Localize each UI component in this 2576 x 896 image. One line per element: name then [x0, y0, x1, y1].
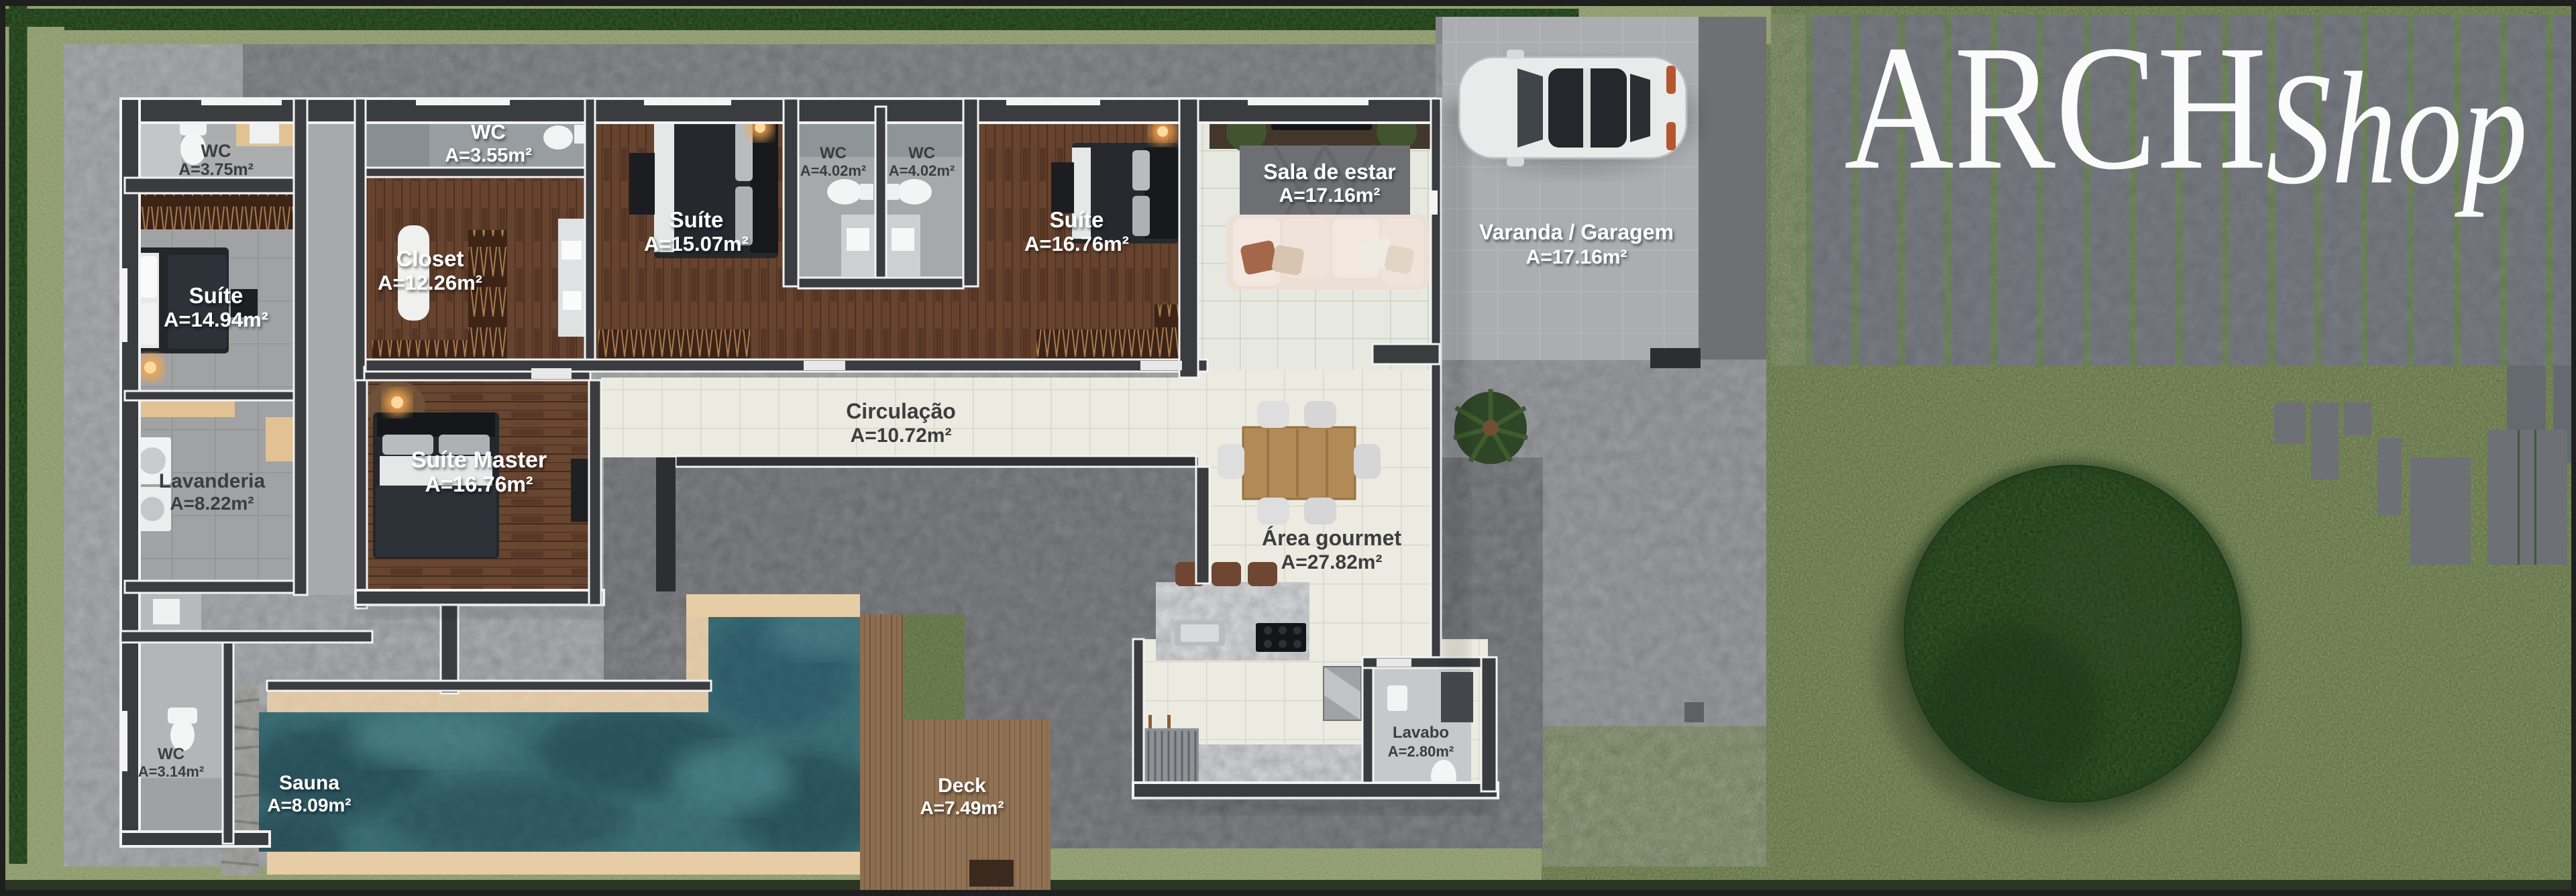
svg-text:WC: WC [471, 120, 506, 144]
svg-text:Circulação: Circulação [846, 399, 956, 423]
svg-text:A=10.72m²: A=10.72m² [851, 425, 952, 447]
svg-text:A=4.02m²: A=4.02m² [800, 162, 866, 179]
svg-text:Lavanderia: Lavanderia [159, 470, 266, 492]
svg-text:A=2.80m²: A=2.80m² [1388, 743, 1454, 760]
svg-text:Varanda / Garagem: Varanda / Garagem [1479, 220, 1674, 244]
svg-text:Sala de estar: Sala de estar [1263, 160, 1395, 184]
svg-text:A=7.49m²: A=7.49m² [920, 797, 1004, 818]
svg-text:A=8.22m²: A=8.22m² [170, 493, 254, 514]
svg-text:WC: WC [820, 144, 847, 162]
svg-text:A=16.76m²: A=16.76m² [1024, 232, 1129, 256]
svg-text:A=15.07m²: A=15.07m² [644, 232, 749, 256]
svg-text:A=4.02m²: A=4.02m² [889, 162, 955, 179]
svg-text:A=17.16m²: A=17.16m² [1526, 246, 1627, 268]
svg-text:Deck: Deck [938, 775, 986, 797]
svg-text:Lavabo: Lavabo [1393, 724, 1449, 742]
svg-text:Shop: Shop [2266, 39, 2528, 217]
svg-text:A=3.75m²: A=3.75m² [178, 160, 254, 179]
svg-text:WC: WC [201, 141, 231, 161]
svg-text:Suíte Master: Suíte Master [411, 447, 547, 473]
svg-text:Suíte: Suíte [669, 207, 724, 232]
svg-text:WC: WC [908, 144, 935, 162]
svg-text:A=14.94m²: A=14.94m² [164, 308, 268, 331]
svg-text:A=27.82m²: A=27.82m² [1281, 551, 1383, 573]
svg-text:A=8.09m²: A=8.09m² [267, 795, 351, 816]
svg-text:Área gourmet: Área gourmet [1262, 526, 1401, 550]
svg-text:A=17.16m²: A=17.16m² [1279, 184, 1381, 207]
svg-text:A=3.55m²: A=3.55m² [445, 145, 532, 166]
svg-text:A=12.26m²: A=12.26m² [378, 271, 482, 294]
svg-text:Suíte: Suíte [189, 283, 244, 308]
svg-text:WC: WC [158, 745, 184, 763]
svg-text:Sauna: Sauna [279, 772, 339, 794]
svg-text:A=16.76m²: A=16.76m² [425, 472, 533, 496]
svg-text:Suíte: Suíte [1050, 207, 1104, 232]
svg-text:Closet: Closet [396, 246, 464, 271]
svg-text:A=3.14m²: A=3.14m² [138, 763, 204, 780]
svg-text:ARCH: ARCH [1844, 8, 2267, 207]
